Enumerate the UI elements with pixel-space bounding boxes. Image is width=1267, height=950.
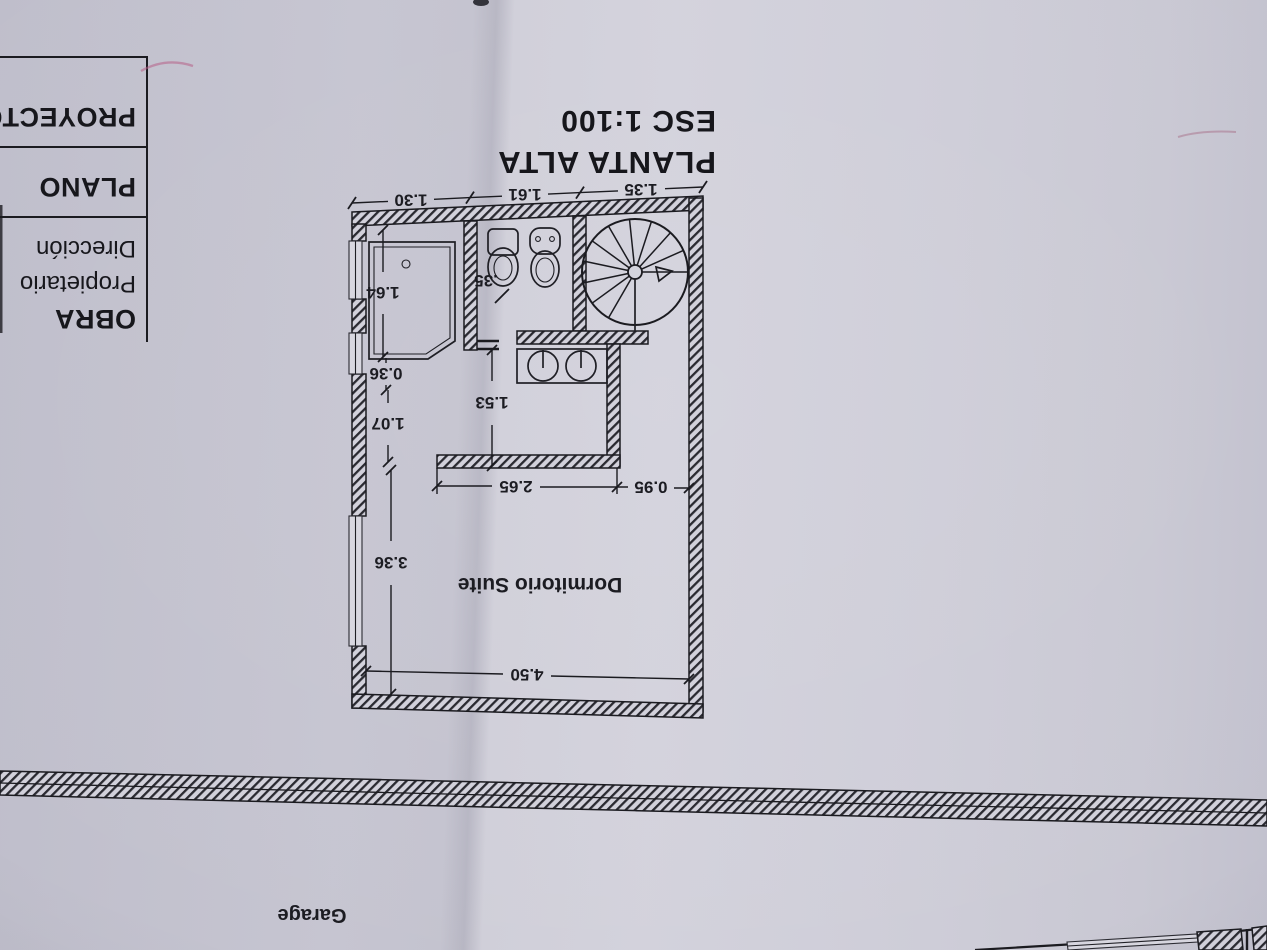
- dim-3-36: 3.36: [374, 553, 407, 572]
- wall-right: [689, 198, 703, 712]
- dim-1-61: 1.61: [508, 185, 541, 204]
- dim-0-35-tick: [495, 289, 509, 303]
- garage-bottom-wall-fragment: [975, 926, 1267, 950]
- room-label-garage: Garage: [278, 904, 347, 926]
- wall-bath-south: [437, 455, 620, 468]
- stair-center-post: [628, 265, 642, 279]
- title-block-edge-line: [0, 205, 3, 333]
- garage-level-fragments: Garage: [0, 771, 1267, 950]
- paper-edge-smudge: [473, 0, 489, 6]
- suite-overall-dimension: 4.50: [361, 665, 694, 684]
- toilet-button-1: [536, 237, 541, 242]
- dim-1-64: 1.64: [366, 283, 400, 302]
- dim-0-35: .35: [474, 271, 498, 290]
- pink-pen-mark-right: [1178, 132, 1236, 137]
- dim-1-53: 1.53: [475, 393, 508, 412]
- wall-left-seg3: [352, 374, 366, 516]
- bath-dimension: 1.53 .35: [474, 271, 509, 471]
- vanity: [517, 349, 607, 383]
- left-dimension-chain: 1.64 0.36 1.07 3.36: [366, 225, 408, 699]
- dim-1-07: 1.07: [371, 414, 404, 433]
- toilet-button-2: [550, 237, 555, 242]
- dim-0-95: 0.95: [634, 478, 667, 497]
- wall-left-seg1: [352, 224, 366, 241]
- toilet: [530, 228, 560, 287]
- wall-vanity-east: [607, 344, 620, 466]
- walls: [352, 196, 703, 718]
- bidet-tank: [488, 229, 518, 255]
- room-label-dormitorio-suite: Dormitorio Suite: [458, 573, 623, 596]
- spiral-staircase: [582, 219, 688, 331]
- toilet-tank: [530, 228, 560, 254]
- dim-1-30: 1.30: [394, 190, 427, 209]
- dim-1-35: 1.35: [624, 180, 657, 199]
- door-jamb-marks: [477, 341, 499, 349]
- floor-plan-drawing: 1.30 1.61 1.35 1.64 0.36 1.07 3.36: [0, 0, 1267, 950]
- shower-drain: [402, 260, 410, 268]
- stair-direction-arrow: [656, 267, 672, 281]
- planta-alta-plan: 1.30 1.61 1.35 1.64 0.36 1.07 3.36: [348, 180, 707, 718]
- dim-4-50: 4.50: [510, 665, 543, 684]
- toilet-bowl-inner: [536, 258, 554, 282]
- photographed-floor-plan-page: OBRA Propietario Dirección PLANO PROYECT…: [0, 0, 1267, 950]
- wall-stair-south: [517, 331, 648, 344]
- wall-bottom: [352, 694, 703, 718]
- vanity-counter: [517, 349, 607, 383]
- wall-wc-stair-divider: [573, 216, 586, 331]
- wall-left-seg2: [352, 299, 366, 333]
- suite-width-dimensions: 2.65 0.95: [432, 468, 694, 497]
- dim-2-65: 2.65: [499, 477, 532, 496]
- pink-pen-mark-top: [141, 62, 193, 71]
- dim-0-36: 0.36: [369, 364, 402, 383]
